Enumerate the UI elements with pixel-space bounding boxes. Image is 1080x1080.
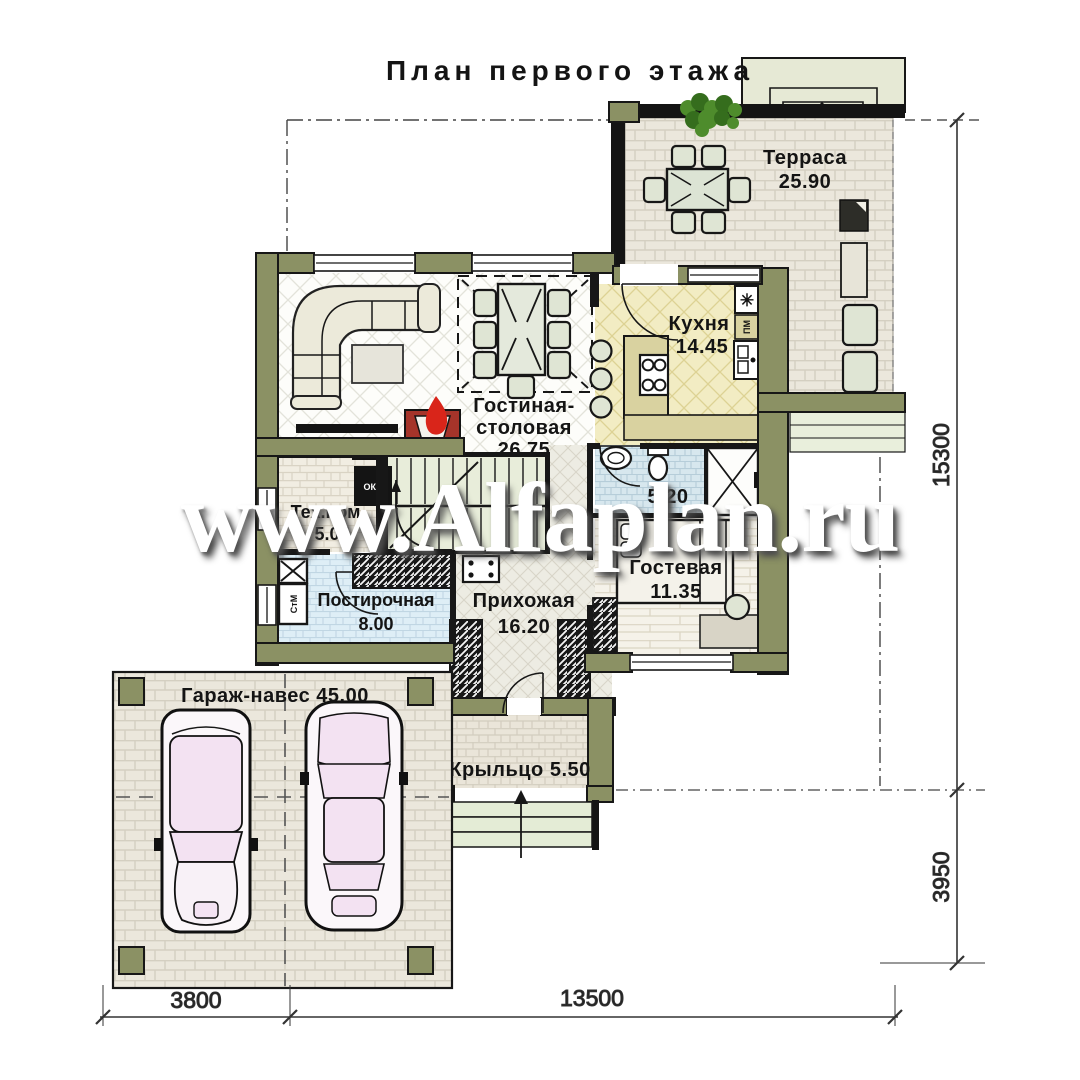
bar-stool [591,397,612,418]
floor-plan-drawing: Терраса 25.90 Гостиная- столовая 26.75 [0,0,1080,1080]
chair [725,595,749,619]
tech-label: Тех.пом. [291,502,366,522]
guest-area: 11.35 [650,581,701,603]
terrace-left-wall [611,104,625,268]
wardrobe [353,554,452,588]
bar-stool [591,369,612,390]
living-label-2: столовая [476,417,572,439]
toilet [649,456,667,480]
dim-right-lower: 3950 [928,851,954,902]
hall-corridor-floor [548,445,593,552]
desk [700,615,758,648]
terrace-corner-post [609,102,639,122]
porch-label: Крыльцо 5.50 [449,759,591,781]
terrace-label: Терраса [763,147,847,169]
laundry-area: 8.00 [358,614,393,634]
kitchen-counter [624,415,758,440]
terrace-area: 25.90 [779,171,832,193]
laundry-label: Постирочная [318,590,435,610]
bath-area: 5.20 [648,486,689,508]
terrace-side-steps [790,412,905,452]
bar-stool [591,341,612,362]
dim-right-upper: 15300 [928,423,954,487]
tv [296,424,398,433]
page-title: План первого этажа [386,55,754,86]
car [154,710,258,932]
terrace-top-wall [611,104,905,118]
garage-label: Гараж-навес 45.00 [181,685,369,707]
hall-label: Прихожая [473,590,576,612]
tech-area: 5.05 [314,524,349,544]
kitchen-area: 14.45 [676,336,729,358]
car [300,702,408,930]
bench [463,556,499,582]
dim-bottom-left: 3800 [170,987,221,1013]
wardrobe [593,598,617,652]
terrace-entry-steps [742,58,905,112]
dim-bottom-right: 13500 [560,985,624,1011]
hall-area: 16.20 [498,616,551,638]
dishwasher-label: ПМ [742,320,752,334]
guest-label: Гостевая [629,557,722,579]
coffee-table [352,345,403,383]
living-area: 26.75 [498,439,551,461]
living-label-1: Гостиная- [473,395,575,417]
washer-label: СтМ [289,595,299,613]
garage: Гараж-навес 45.00 [113,672,452,988]
floor-plan-page: Терраса 25.90 Гостиная- столовая 26.75 [0,0,1080,1080]
kitchen-label: Кухня [669,313,730,335]
vent-icon: ✳ [740,291,754,310]
